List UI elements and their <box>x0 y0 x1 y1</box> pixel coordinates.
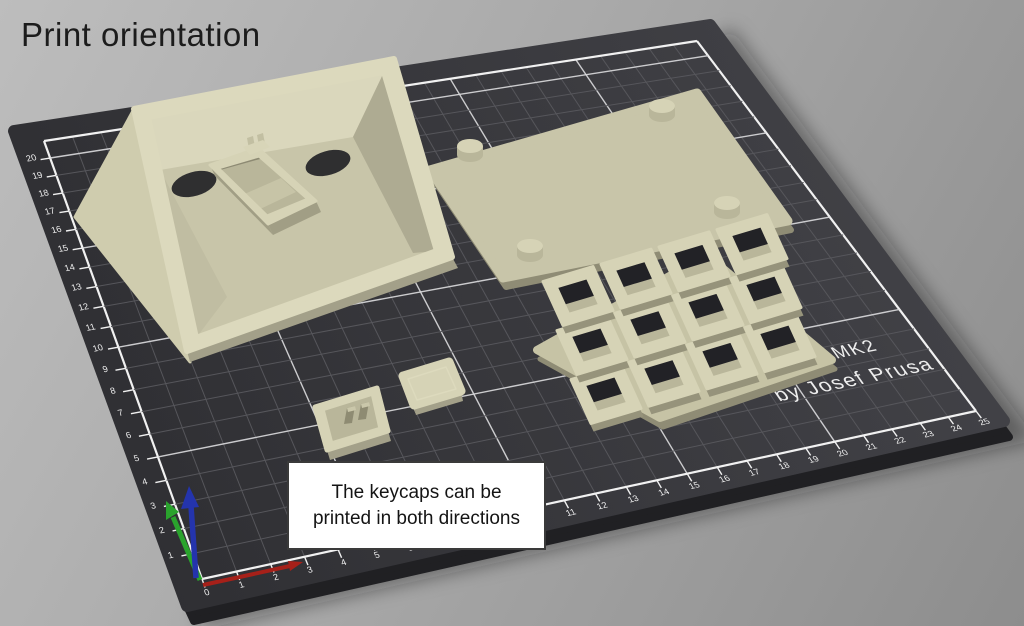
lid-post <box>649 99 675 122</box>
lid-post <box>517 239 543 262</box>
lid-post <box>714 196 740 219</box>
slicer-screenshot: 0123456789101112131415161718192021222324… <box>0 0 1024 626</box>
annotation-line-1: The keycaps can be <box>331 480 501 506</box>
page-title: Print orientation <box>21 16 261 54</box>
lid-post <box>457 139 483 162</box>
annotation-line-2: printed in both directions <box>313 506 520 532</box>
annotation-callout: The keycaps can be printed in both direc… <box>287 461 546 550</box>
